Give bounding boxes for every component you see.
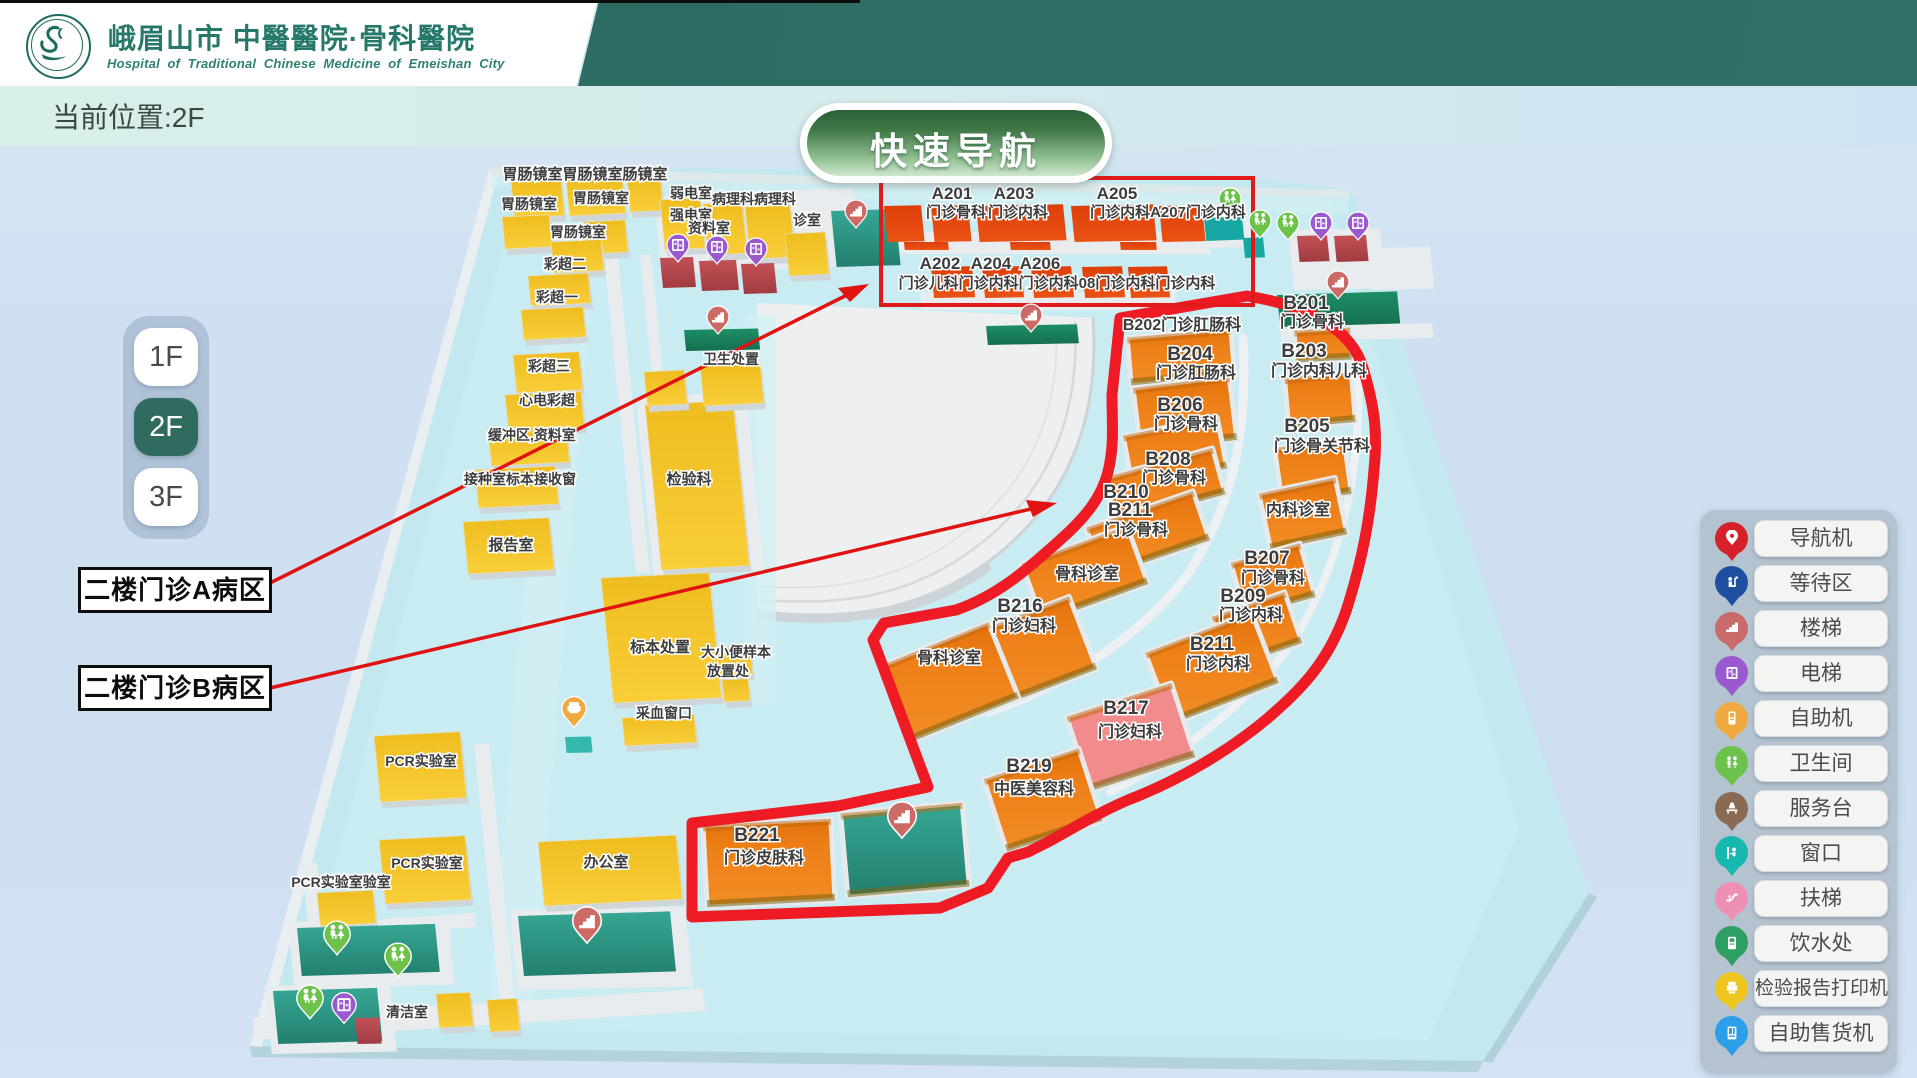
svg-text:缓冲区,资料室: 缓冲区,资料室 bbox=[488, 427, 576, 443]
svg-text:骨科诊室: 骨科诊室 bbox=[917, 648, 981, 667]
svg-text:门诊内科儿科: 门诊内科儿科 bbox=[1271, 361, 1367, 380]
svg-text:门诊内科A207门诊内科: 门诊内科A207门诊内科 bbox=[1090, 203, 1246, 221]
svg-text:标本处置: 标本处置 bbox=[629, 638, 690, 656]
svg-text:胃肠镜室胃肠镜室肠镜室: 胃肠镜室胃肠镜室肠镜室 bbox=[502, 165, 667, 183]
svg-text:骨科诊室: 骨科诊室 bbox=[1055, 564, 1119, 583]
svg-text:门诊妇科: 门诊妇科 bbox=[992, 616, 1056, 635]
svg-text:接种室标本接收窗: 接种室标本接收窗 bbox=[464, 471, 576, 487]
svg-text:办公室: 办公室 bbox=[583, 853, 628, 871]
svg-text:卫生处置: 卫生处置 bbox=[703, 351, 759, 367]
svg-text:门诊骨科: 门诊骨科 bbox=[1241, 568, 1305, 587]
svg-text:清洁室: 清洁室 bbox=[386, 1004, 428, 1020]
svg-text:B207: B207 bbox=[1244, 548, 1289, 569]
svg-text:B206: B206 bbox=[1157, 395, 1202, 416]
svg-text:门诊骨科: 门诊骨科 bbox=[1280, 312, 1344, 331]
svg-text:胃肠镜室: 胃肠镜室 bbox=[550, 224, 606, 240]
svg-text:大小便样本: 大小便样本 bbox=[701, 644, 772, 660]
svg-text:内科诊室: 内科诊室 bbox=[1266, 500, 1330, 519]
svg-text:门诊儿科门诊内科门诊内科08门诊内科门诊内科: 门诊儿科门诊内科门诊内科08门诊内科门诊内科 bbox=[899, 274, 1216, 292]
svg-text:B219: B219 bbox=[1006, 756, 1051, 777]
svg-text:放置处: 放置处 bbox=[706, 663, 750, 679]
svg-text:彩超三: 彩超三 bbox=[527, 358, 570, 374]
svg-text:胃肠镜室: 胃肠镜室 bbox=[573, 190, 629, 206]
svg-text:门诊内科: 门诊内科 bbox=[1186, 654, 1250, 673]
svg-text:B203: B203 bbox=[1281, 341, 1326, 362]
svg-text:报告室: 报告室 bbox=[488, 536, 533, 554]
svg-text:B209: B209 bbox=[1220, 586, 1265, 607]
svg-text:B211: B211 bbox=[1108, 500, 1153, 521]
svg-text:B208: B208 bbox=[1145, 449, 1190, 470]
svg-text:检验科: 检验科 bbox=[666, 470, 711, 488]
svg-text:B211: B211 bbox=[1190, 634, 1235, 655]
svg-text:彩超一: 彩超一 bbox=[535, 289, 578, 305]
svg-text:门诊皮肤科: 门诊皮肤科 bbox=[724, 848, 804, 867]
svg-text:A201: A201 bbox=[932, 184, 973, 203]
svg-text:门诊骨科: 门诊骨科 bbox=[1104, 520, 1168, 539]
svg-text:门诊骨科: 门诊骨科 bbox=[1142, 468, 1206, 487]
svg-text:A204: A204 bbox=[971, 254, 1012, 273]
svg-text:A202: A202 bbox=[920, 254, 961, 273]
svg-text:B202门诊肛肠科: B202门诊肛肠科 bbox=[1123, 315, 1241, 334]
svg-text:中医美容科: 中医美容科 bbox=[994, 779, 1074, 798]
svg-text:B217: B217 bbox=[1103, 698, 1148, 719]
svg-text:彩超二: 彩超二 bbox=[543, 256, 586, 272]
svg-text:门诊骨关节科: 门诊骨关节科 bbox=[1274, 436, 1370, 455]
svg-text:PCR实验室: PCR实验室 bbox=[385, 753, 457, 769]
svg-text:门诊妇科: 门诊妇科 bbox=[1098, 722, 1162, 741]
svg-text:A206: A206 bbox=[1020, 254, 1061, 273]
svg-text:胃肠镜室: 胃肠镜室 bbox=[501, 196, 557, 212]
svg-text:A205: A205 bbox=[1097, 184, 1138, 203]
svg-text:A203: A203 bbox=[994, 184, 1035, 203]
svg-text:心电彩超: 心电彩超 bbox=[519, 392, 576, 408]
svg-text:门诊骨科: 门诊骨科 bbox=[1154, 414, 1218, 433]
svg-text:B221: B221 bbox=[734, 825, 780, 846]
svg-text:诊室: 诊室 bbox=[793, 212, 821, 228]
svg-text:病理科病理科: 病理科病理科 bbox=[712, 191, 796, 207]
svg-text:PCR实验室验室: PCR实验室验室 bbox=[291, 874, 391, 890]
svg-text:门诊内科: 门诊内科 bbox=[1219, 605, 1283, 624]
svg-text:资料室: 资料室 bbox=[688, 220, 730, 236]
svg-text:B201: B201 bbox=[1283, 293, 1329, 314]
svg-text:B204: B204 bbox=[1167, 344, 1213, 365]
svg-text:B216: B216 bbox=[997, 596, 1042, 617]
svg-text:B205: B205 bbox=[1284, 416, 1330, 437]
svg-text:弱电室: 弱电室 bbox=[670, 185, 712, 201]
svg-text:PCR实验室: PCR实验室 bbox=[391, 855, 463, 871]
svg-text:门诊肛肠科: 门诊肛肠科 bbox=[1156, 363, 1236, 382]
svg-text:采血窗口: 采血窗口 bbox=[635, 705, 692, 721]
svg-text:门诊内科: 门诊内科 bbox=[988, 203, 1048, 221]
svg-text:门诊骨科: 门诊骨科 bbox=[926, 203, 986, 221]
